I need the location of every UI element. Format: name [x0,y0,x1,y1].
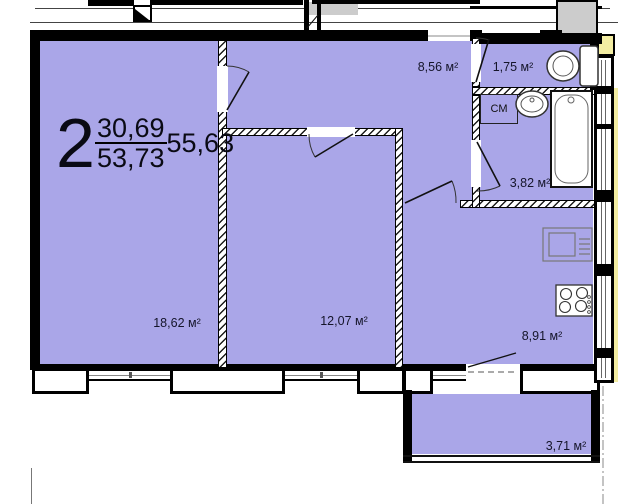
total-with-balcony-value: 55,63 [167,130,235,157]
rooms-count: 2 [56,112,93,175]
sink-icon [516,91,548,117]
total-area-value: 53,73 [95,144,167,172]
area-fraction: 30,69 53,73 [95,115,167,173]
kitchen-sink-icon [543,228,592,261]
room-label-living: 18,62 м² [118,316,236,330]
room-label-bedroom: 12,07 м² [288,314,400,328]
door-living-room [227,66,249,110]
living-area-value: 30,69 [95,115,167,145]
vestibule-door-line [307,15,318,28]
doors-and-fixtures-overlay [0,0,618,504]
floor-plan: СМ [0,0,618,504]
door-bedroom [309,134,353,157]
room-label-bathroom: 3,82 м² [478,176,582,190]
door-kitchen [405,181,456,203]
room-label-kitchen: 8,91 м² [488,329,596,343]
room-label-wc: 1,75 м² [468,60,558,74]
bathtub-icon [551,91,592,187]
stove-icon [556,285,592,316]
door-balcony [468,353,518,372]
apartment-info-label: 2 30,69 53,73 55,63 [56,112,234,175]
duct-hatch [135,9,149,20]
room-label-balcony: 3,71 м² [514,439,618,453]
